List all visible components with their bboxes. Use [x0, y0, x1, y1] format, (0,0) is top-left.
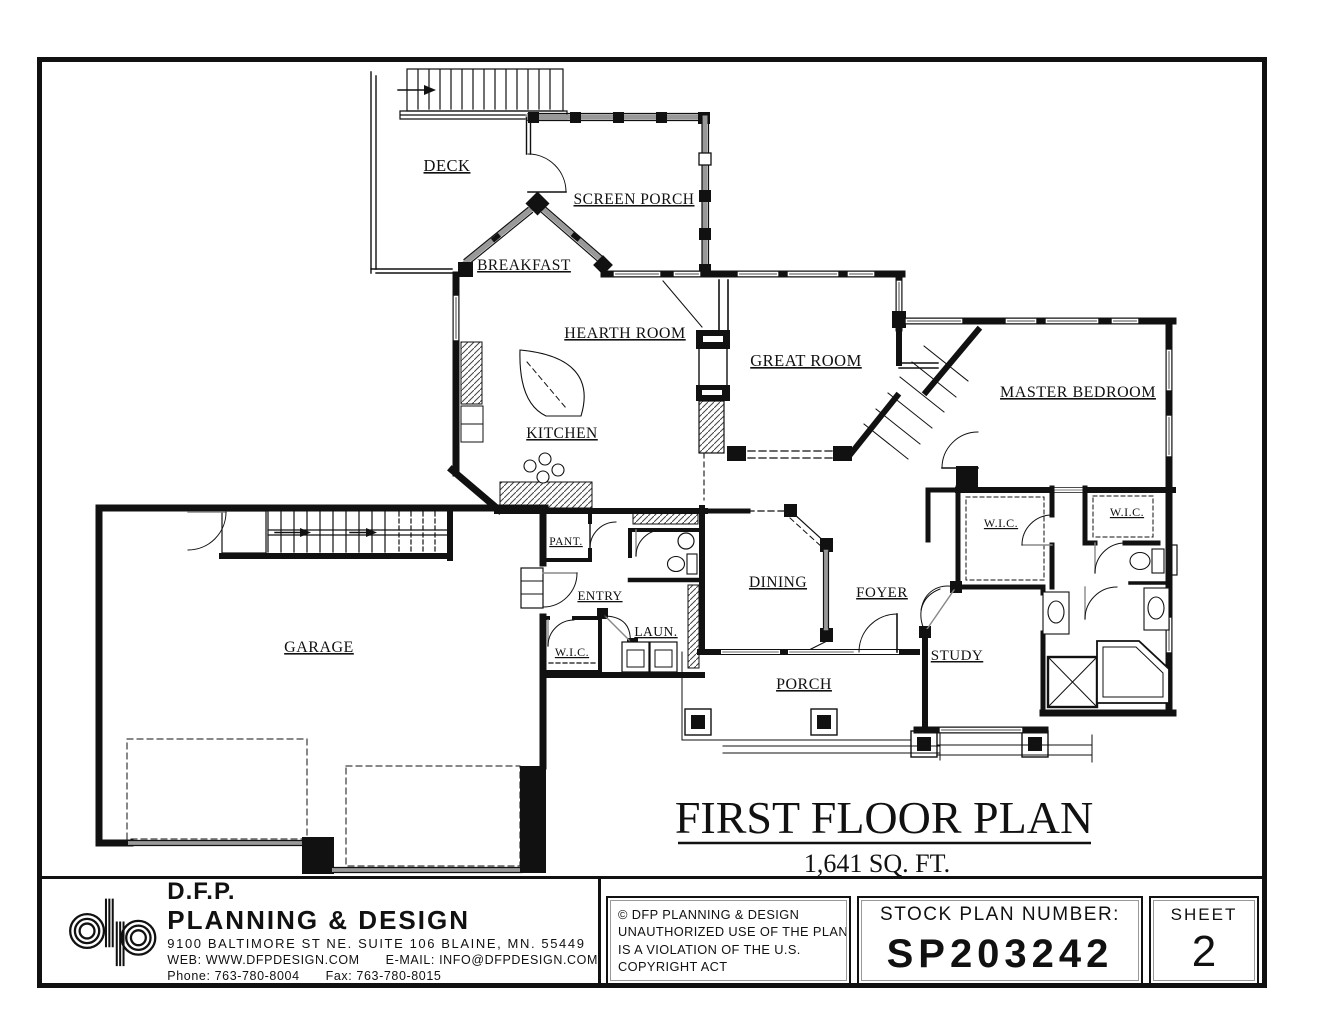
room-label-garage: GARAGE: [284, 639, 354, 656]
room-label-entry: ENTRY: [577, 588, 622, 603]
plan-title: FIRST FLOOR PLAN: [675, 792, 1093, 843]
plan-title-group: FIRST FLOOR PLAN 1,641 SQ. FT.: [675, 792, 1093, 878]
copyright-line-1: © DFP PLANNING & DESIGN: [618, 906, 799, 923]
porch-walls: [682, 614, 1092, 762]
room-label-foyer: FOYER: [856, 585, 908, 601]
room-label-master-bedroom: MASTER BEDROOM: [1000, 384, 1156, 401]
room-label-pantry: PANT.: [549, 536, 583, 548]
room-label-kitchen: KITCHEN: [526, 425, 598, 442]
room-label-wic-master-2: W.I.C.: [1110, 505, 1144, 519]
company-address: 9100 BALTIMORE ST NE. SUITE 106 BLAINE, …: [167, 937, 598, 950]
room-label-study: STUDY: [931, 648, 984, 664]
room-label-laundry: LAUN.: [634, 624, 677, 639]
room-label-screen-porch: SCREEN PORCH: [574, 191, 695, 208]
company-abbr: D.F.P.: [167, 880, 598, 904]
sheet-number-box: SHEET 2: [1149, 896, 1259, 985]
copyright-box: © DFP PLANNING & DESIGN UNAUTHORIZED USE…: [606, 896, 851, 985]
title-block: D.F.P. PLANNING & DESIGN 9100 BALTIMORE …: [42, 876, 1262, 983]
kitchen-walls: [452, 275, 698, 524]
room-label-wic-entry: W.I.C.: [555, 645, 589, 659]
room-label-hearth-room: HEARTH ROOM: [564, 325, 685, 342]
room-label-breakfast: BREAKFAST: [477, 257, 571, 274]
dfp-logo-icon: [56, 883, 157, 979]
company-name: PLANNING & DESIGN: [167, 907, 598, 933]
fireplace: [696, 330, 730, 453]
copyright-line-2: UNAUTHORIZED USE OF THE PLAN: [618, 923, 848, 940]
room-label-deck: DECK: [424, 156, 471, 175]
floor-plan-drawing: DECK SCREEN PORCH BREAKFAST HEARTH ROOM …: [0, 0, 1320, 1020]
copyright-line-4: COPYRIGHT ACT: [618, 958, 728, 975]
great-room-walls: [704, 280, 899, 500]
master-bath: [1043, 549, 1173, 713]
company-email: E-MAIL: INFO@DFPDESIGN.COM: [386, 954, 598, 967]
room-label-porch: PORCH: [776, 676, 832, 693]
stock-plan-box: STOCK PLAN NUMBER: SP203242: [857, 896, 1143, 985]
room-label-wic-master: W.I.C.: [984, 516, 1018, 530]
sheet-label: SHEET: [1171, 905, 1238, 925]
stock-plan-label: STOCK PLAN NUMBER:: [880, 904, 1120, 926]
title-block-right: © DFP PLANNING & DESIGN UNAUTHORIZED USE…: [601, 879, 1262, 983]
sheet-number: 2: [1192, 927, 1216, 977]
plan-area: 1,641 SQ. FT.: [804, 849, 950, 878]
drawing-sheet: DECK SCREEN PORCH BREAKFAST HEARTH ROOM …: [0, 0, 1320, 1020]
room-label-dining: DINING: [749, 574, 807, 591]
room-label-great-room: GREAT ROOM: [750, 351, 862, 370]
deck-stairs: [398, 69, 567, 119]
garage-walls: [99, 508, 546, 874]
master-closets: [956, 488, 1158, 587]
company-phone: Phone: 763-780-8004: [167, 970, 299, 983]
walls: [99, 69, 1177, 874]
title-block-company-cell: D.F.P. PLANNING & DESIGN 9100 BALTIMORE …: [42, 879, 601, 983]
company-fax: Fax: 763-780-8015: [326, 970, 442, 983]
upper-wall: [604, 274, 906, 328]
company-web: WEB: WWW.DFPDESIGN.COM: [167, 954, 359, 967]
copyright-line-3: IS A VIOLATION OF THE U.S.: [618, 941, 801, 958]
stock-plan-number: SP203242: [887, 932, 1114, 977]
